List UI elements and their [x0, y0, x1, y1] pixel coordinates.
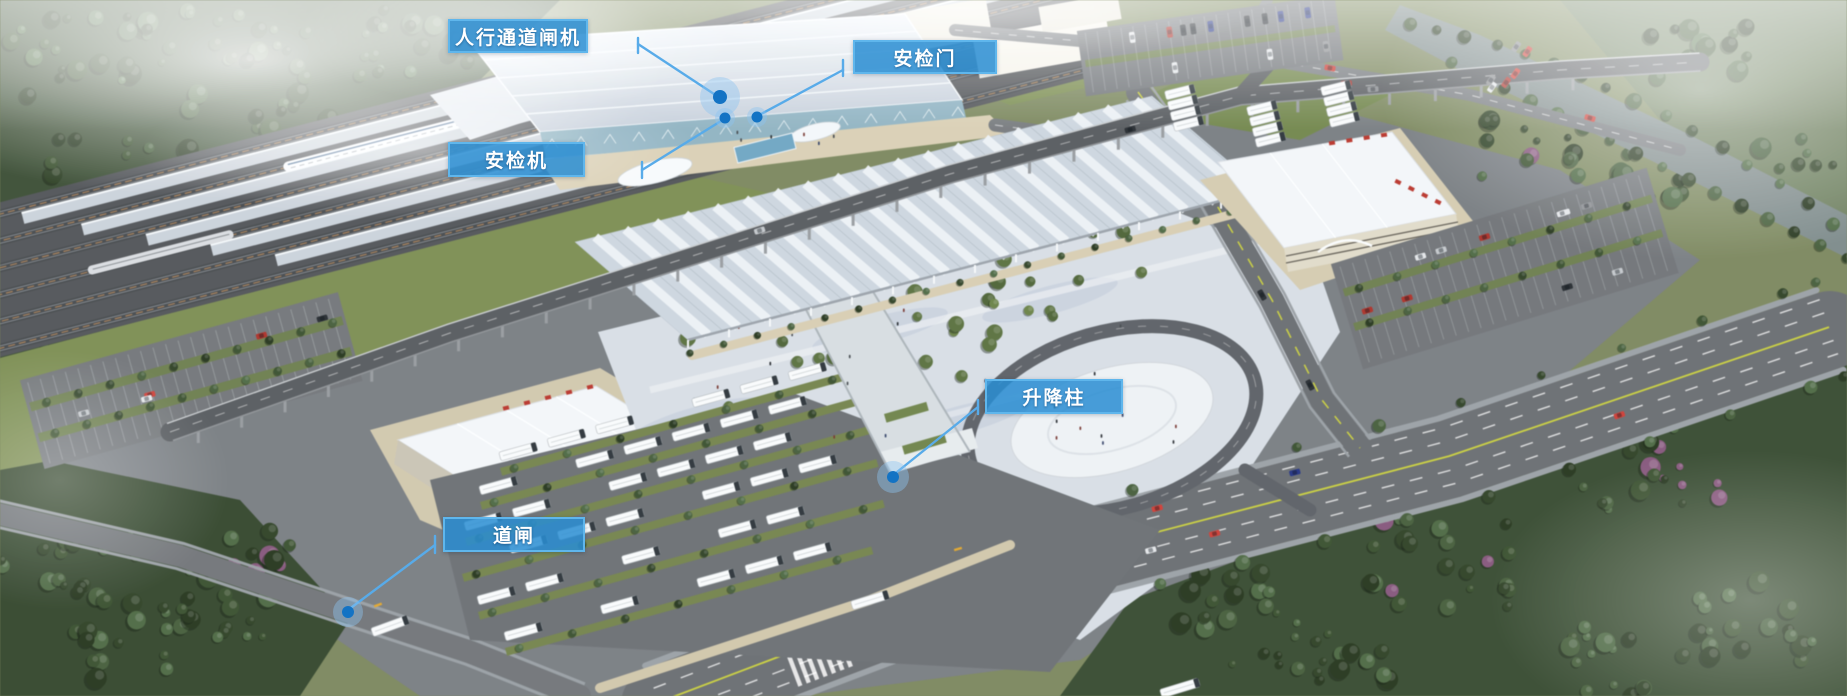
- callout-label-text: 安检机: [485, 146, 548, 173]
- callout-label-road-barrier: 道闸: [443, 517, 585, 552]
- annotated-aerial-rendering: 人行通道闸机安检门安检机升降柱道闸: [0, 0, 1847, 696]
- callout-label-security-scanner: 安检机: [448, 142, 585, 177]
- callout-label-text: 安检门: [893, 44, 956, 71]
- callout-label-text: 人行通道闸机: [455, 23, 581, 50]
- callout-label-pedestrian-gate: 人行通道闸机: [448, 19, 588, 53]
- callout-label-text: 升降柱: [1022, 383, 1085, 410]
- callout-label-security-door: 安检门: [853, 40, 997, 74]
- aerial-scene: [0, 0, 1847, 696]
- callout-label-text: 道闸: [493, 521, 535, 548]
- callout-label-lifting-bollard: 升降柱: [985, 379, 1123, 414]
